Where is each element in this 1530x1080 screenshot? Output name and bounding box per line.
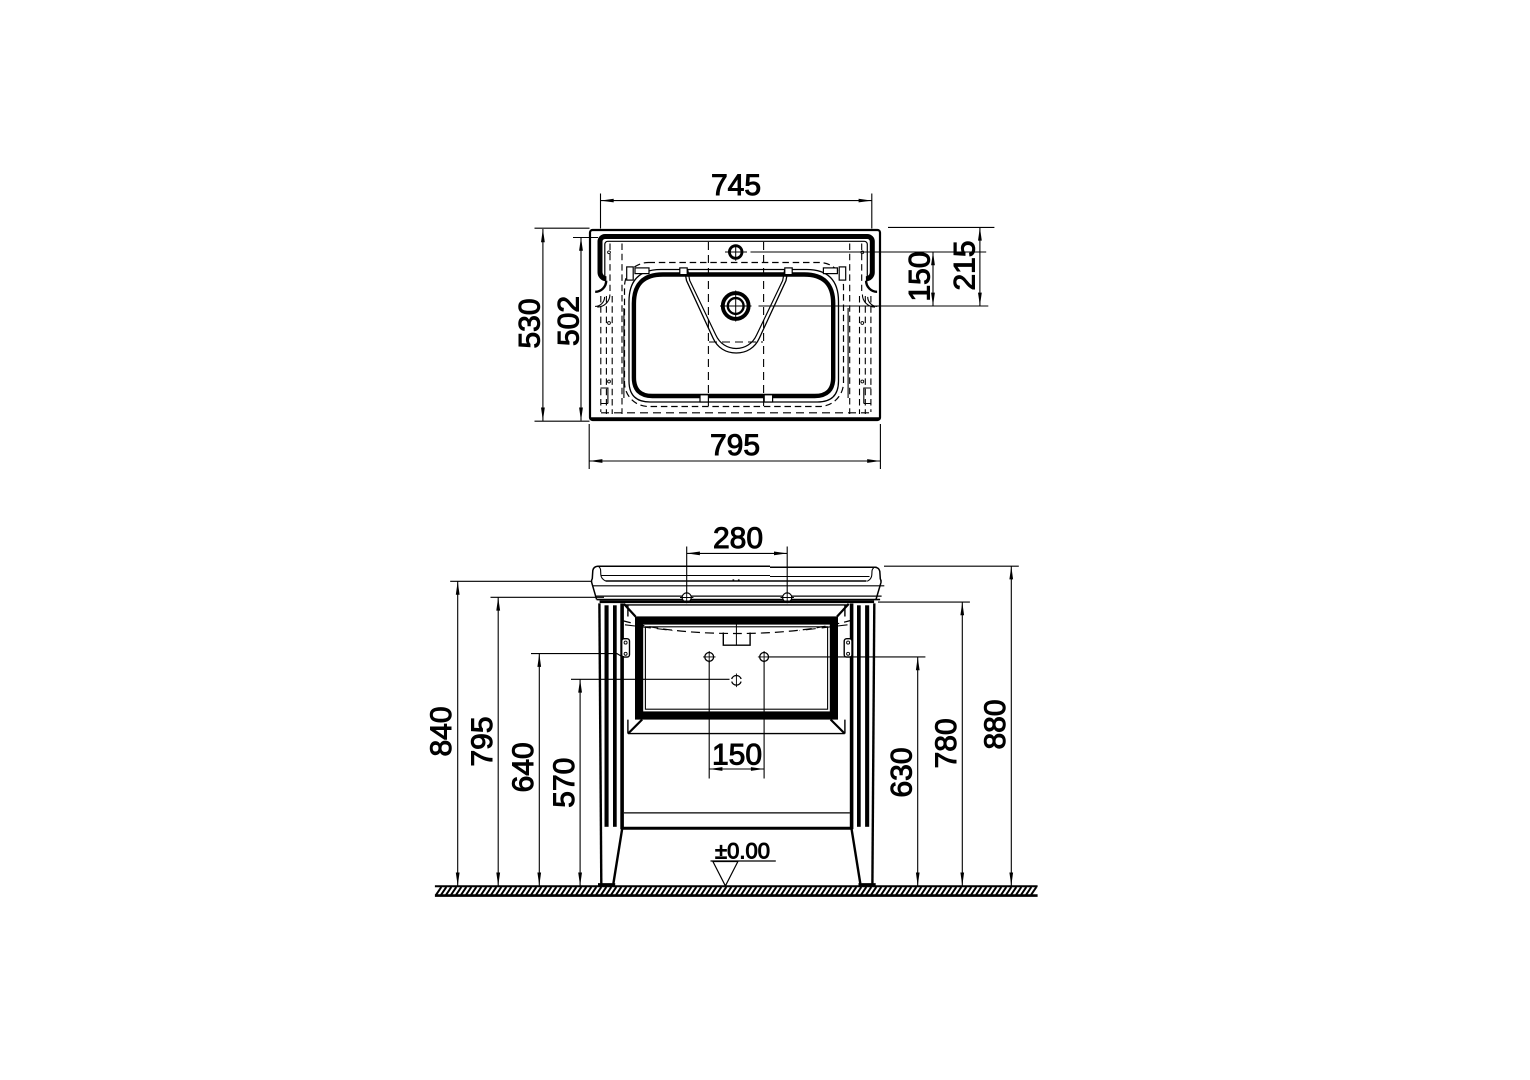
svg-text:880: 880 xyxy=(979,699,1012,749)
svg-text:215: 215 xyxy=(949,240,982,290)
svg-text:280: 280 xyxy=(713,522,763,555)
svg-text:±0.00: ±0.00 xyxy=(715,839,770,864)
svg-text:150: 150 xyxy=(904,251,937,301)
svg-text:795: 795 xyxy=(710,429,760,462)
svg-text:745: 745 xyxy=(711,169,761,202)
svg-text:570: 570 xyxy=(548,758,581,808)
svg-text:150: 150 xyxy=(712,739,762,772)
svg-text:795: 795 xyxy=(466,716,499,766)
svg-text:640: 640 xyxy=(507,742,540,792)
svg-text:502: 502 xyxy=(553,296,586,346)
svg-text:630: 630 xyxy=(886,747,919,797)
svg-text:780: 780 xyxy=(930,718,963,768)
svg-text:840: 840 xyxy=(425,706,458,756)
svg-text:530: 530 xyxy=(514,298,547,348)
